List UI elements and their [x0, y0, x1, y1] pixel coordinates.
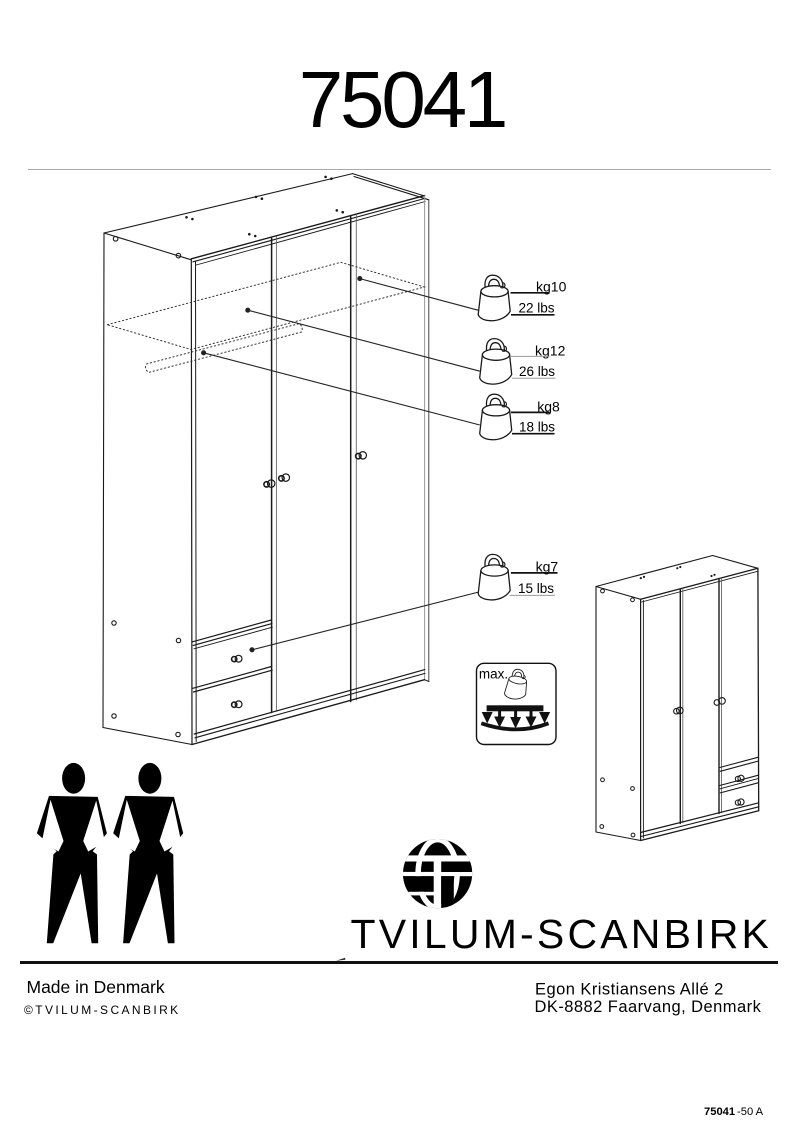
- svg-text:15 lbs: 15 lbs: [518, 581, 554, 596]
- svg-text:18 lbs: 18 lbs: [519, 420, 555, 435]
- svg-text:Made in Denmark: Made in Denmark: [27, 977, 165, 997]
- svg-text:75041: 75041: [299, 55, 505, 144]
- svg-text:26 lbs: 26 lbs: [519, 364, 555, 379]
- svg-text:©TVILUM-SCANBIRK: ©TVILUM-SCANBIRK: [24, 1003, 181, 1017]
- svg-text:22 lbs: 22 lbs: [519, 301, 555, 316]
- svg-text:max.: max.: [479, 667, 508, 682]
- svg-text:TVILUM-SCANBIRK: TVILUM-SCANBIRK: [351, 911, 773, 957]
- svg-text:75041: 75041: [704, 1106, 735, 1118]
- svg-text:Egon Kristiansens Allé 2: Egon Kristiansens Allé 2: [535, 981, 724, 999]
- svg-text:DK-8882 Faarvang, Denmark: DK-8882 Faarvang, Denmark: [535, 998, 762, 1016]
- svg-text:-50 A: -50 A: [737, 1106, 764, 1118]
